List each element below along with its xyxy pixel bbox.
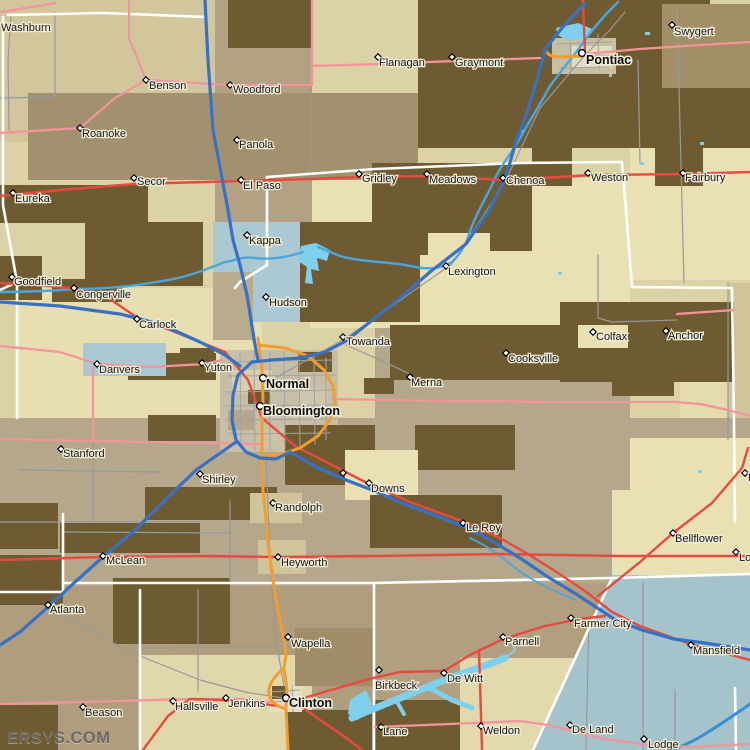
town-label-beason: Beason — [85, 707, 122, 719]
town-label-stanford: Stanford — [63, 448, 105, 460]
terrain-patches-item — [295, 628, 375, 686]
town-label-anchor: Anchor — [668, 330, 703, 342]
town-label-hudson: Hudson — [269, 297, 307, 309]
terrain-patches-item — [0, 503, 58, 549]
town-label-lodge: Lodge — [648, 739, 679, 750]
town-label-panola: Panola — [239, 139, 274, 151]
town-label-bellflower: Bellflower — [675, 533, 723, 545]
terrain-patches-item — [113, 578, 230, 644]
town-label-chenoa: Chenoa — [506, 175, 545, 187]
town-label-congerville: Congerville — [76, 289, 131, 301]
town-label-le-roy: Le Roy — [466, 522, 501, 534]
town-label-el-paso: El Paso — [243, 180, 281, 192]
town-label-swygert: Swygert — [674, 26, 714, 38]
town-label-birkbeck: Birkbeck — [375, 680, 418, 692]
ponds-item — [558, 272, 562, 275]
town-label-cooksville: Cooksville — [508, 353, 558, 365]
terrain-patches-item — [148, 415, 216, 441]
terrain-patches-item — [0, 555, 63, 605]
town-label-yuton: Yuton — [204, 362, 232, 374]
town-label-lo: Lo — [739, 552, 750, 564]
town-label-benson: Benson — [149, 80, 186, 92]
city-marker-pontiac — [579, 50, 586, 57]
town-label-fairbury: Fairbury — [685, 172, 726, 184]
town-label-weston: Weston — [591, 172, 628, 184]
town-label-de-witt: De Witt — [447, 673, 483, 685]
town-label-mclean: McLean — [106, 555, 145, 567]
terrain-patches-item — [60, 523, 200, 553]
terrain-patches-item — [612, 438, 750, 580]
town-label-randolph: Randolph — [275, 502, 322, 514]
town-label-parnell: Parnell — [505, 636, 539, 648]
city-label-normal: Normal — [266, 377, 309, 391]
terrain-patches-item — [695, 88, 750, 148]
terrain-patches-item — [490, 233, 532, 251]
ponds-item — [640, 162, 644, 165]
town-label-heyworth: Heyworth — [281, 557, 327, 569]
town-label-lexington: Lexington — [448, 266, 496, 278]
town-label-downs: Downs — [371, 483, 405, 495]
city-label-clinton: Clinton — [289, 696, 332, 710]
town-label-secor: Secor — [137, 176, 166, 188]
town-label-graymont: Graymont — [455, 57, 503, 69]
town-label-carlock: Carlock — [139, 319, 177, 331]
town-label-flanagan: Flanagan — [379, 57, 425, 69]
town-label-mansfield: Mansfield — [693, 645, 740, 657]
ponds-item — [698, 470, 702, 473]
town-label-kappa: Kappa — [249, 235, 282, 247]
town-label-jenkins: Jenkins — [228, 698, 266, 710]
town-label-roanoke: Roanoke — [82, 128, 126, 140]
terrain-patches-item — [415, 425, 515, 470]
town-label-weldon: Weldon — [483, 725, 520, 737]
town-label-atlanta: Atlanta — [50, 604, 85, 616]
town-label-farmer-city: Farmer City — [574, 618, 632, 630]
town-label-lane: Lane — [383, 726, 407, 738]
terrain-patches-item — [612, 380, 674, 396]
terrain-patches-item — [364, 378, 394, 394]
town-label-washburn: Washburn — [1, 22, 51, 34]
town-label-hallsville: Hallsville — [175, 701, 218, 713]
terrain-patches-item — [213, 272, 253, 340]
ponds-item — [700, 142, 704, 145]
town-label-woodford: Woodford — [233, 84, 281, 96]
city-label-pontiac: Pontiac — [586, 53, 631, 67]
map-screenshot: WashburnBensonWoodfordRoanokePanolaSecor… — [0, 0, 750, 750]
town-label-goodfield: Goodfield — [14, 276, 61, 288]
ponds-item — [609, 74, 612, 77]
town-label-danvers: Danvers — [99, 364, 140, 376]
town-label-eureka: Eureka — [15, 193, 51, 205]
map-canvas: WashburnBensonWoodfordRoanokePanolaSecor… — [0, 0, 750, 750]
county-lines-item — [735, 688, 736, 750]
town-label-de-land: De Land — [572, 724, 614, 736]
town-label-colfax: Colfax — [596, 331, 628, 343]
town-label-wapella: Wapella — [291, 638, 331, 650]
ponds-item — [645, 32, 650, 35]
terrain-patches-item — [228, 0, 312, 48]
town-label-gridley: Gridley — [362, 173, 397, 185]
town-label-merna: Merna — [411, 377, 443, 389]
town-label-meadows: Meadows — [429, 174, 477, 186]
town-label-shirley: Shirley — [202, 474, 236, 486]
ersys-watermark: ERSYS.COM — [7, 729, 111, 748]
city-label-bloomington: Bloomington — [263, 404, 340, 418]
town-label-towanda: Towanda — [346, 336, 391, 348]
